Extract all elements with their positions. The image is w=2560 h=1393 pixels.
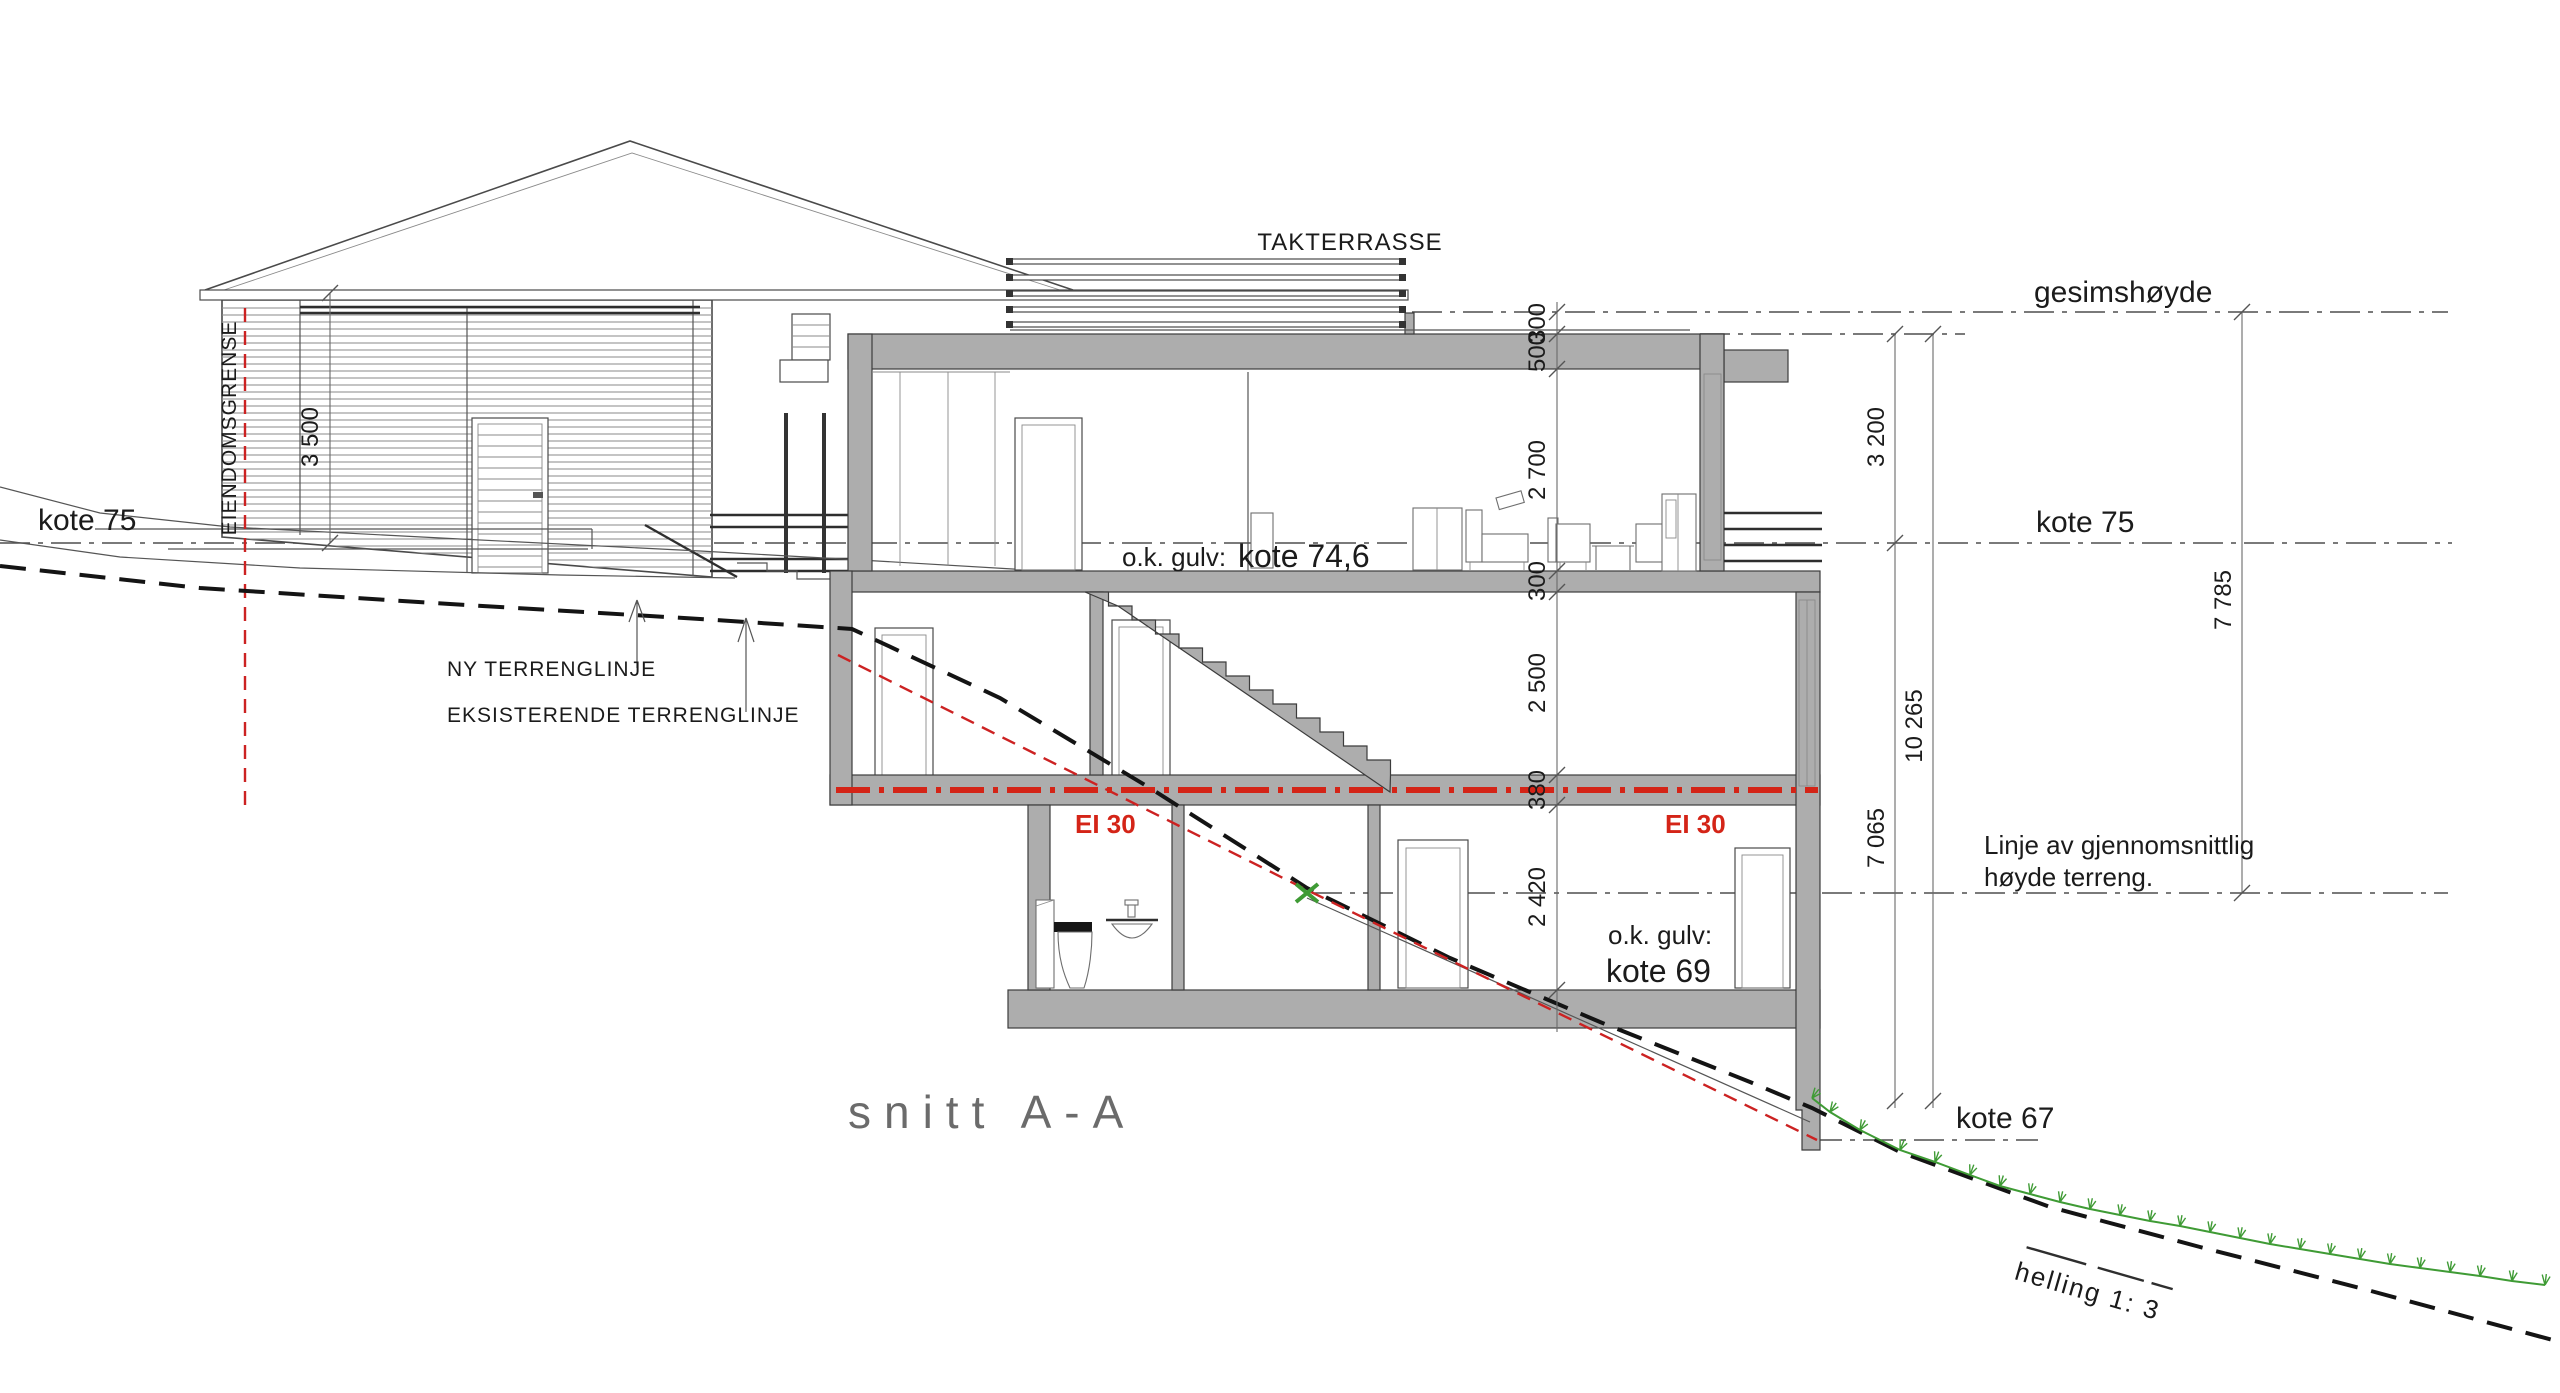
ei30-label-right: EI 30 bbox=[1665, 809, 1726, 839]
right-dim-ticks bbox=[1887, 304, 2250, 1109]
basement-floor-slab bbox=[1008, 990, 1820, 1028]
left-wall-middle bbox=[830, 571, 852, 805]
dim-7065: 7 065 bbox=[1863, 808, 1890, 868]
kote67-label: kote 67 bbox=[1956, 1102, 2054, 1135]
dim-300-mid: 300 bbox=[1524, 561, 1551, 601]
basement-partition-1 bbox=[1172, 805, 1184, 990]
wardrobe bbox=[872, 372, 1010, 566]
dim-2700: 2 700 bbox=[1524, 440, 1551, 500]
hipped-roof bbox=[205, 141, 1073, 290]
roof-slab bbox=[848, 334, 1724, 369]
roof-parapet-ledge bbox=[1724, 350, 1788, 382]
ok-gulv-basement-prefix: o.k. gulv: bbox=[1608, 920, 1712, 950]
building-section bbox=[780, 313, 1820, 1150]
dim-3500: 3 500 bbox=[297, 407, 324, 467]
eksisterende-terrenglinje-label: EKSISTERENDE TERRENGLINJE bbox=[447, 704, 800, 727]
avg-terrain-label-1: Linje av gjennomsnittlig bbox=[1984, 830, 2254, 860]
right-wall-lower bbox=[1796, 592, 1820, 1150]
sink bbox=[1106, 900, 1158, 938]
terrain bbox=[0, 566, 2560, 1342]
main-floor-door bbox=[1015, 418, 1082, 570]
dim-3200: 3 200 bbox=[1863, 407, 1890, 467]
terrain-callouts: NY TERRENGLINJE EKSISTERENDE TERRENGLINJ… bbox=[447, 600, 800, 727]
main-floor-slab bbox=[848, 571, 1820, 592]
dimension-chain: 300 500 2 700 300 2 500 380 2 420 bbox=[1524, 302, 1565, 1032]
kote75-right-label: kote 75 bbox=[2036, 506, 2134, 539]
balcony-railing bbox=[1724, 513, 1822, 561]
dim-10265: 10 265 bbox=[1901, 689, 1928, 762]
new-terrain-green bbox=[1812, 1098, 2545, 1285]
pergola-rails bbox=[1006, 258, 1406, 328]
ok-gulv-main-prefix: o.k. gulv: bbox=[1122, 542, 1226, 572]
dim-7785: 7 785 bbox=[2210, 570, 2237, 630]
dim-2500: 2 500 bbox=[1524, 653, 1551, 713]
helling-label: helling 1: 3 bbox=[2012, 1256, 2164, 1326]
dim-2420: 2 420 bbox=[1524, 867, 1551, 927]
basement-partition-2 bbox=[1368, 805, 1380, 990]
middle-partition bbox=[1090, 592, 1103, 775]
door-handle bbox=[533, 492, 543, 498]
dimension-right: 3 200 7 065 10 265 7 785 bbox=[1863, 304, 2250, 1109]
roof-beam-block bbox=[792, 314, 830, 360]
kote75-left-label: kote 75 bbox=[38, 504, 136, 537]
pergola-post bbox=[1405, 313, 1414, 334]
middle-floor-doors bbox=[875, 620, 1170, 782]
avg-terrain-label-2: høyde terreng. bbox=[1984, 862, 2153, 892]
ok-gulv-main-value: kote 74,6 bbox=[1238, 538, 1370, 574]
toilet bbox=[1036, 900, 1092, 988]
left-wall-upper bbox=[848, 334, 872, 571]
helling-annotation: helling 1: 3 bbox=[2012, 1246, 2173, 1327]
drawing-title: snitt A-A bbox=[848, 1086, 1136, 1138]
entry-ledge bbox=[780, 360, 828, 382]
ei30-label-left: EI 30 bbox=[1075, 809, 1136, 839]
property-line: EIENDOMSGRENSE bbox=[218, 308, 245, 805]
entry-door bbox=[472, 418, 548, 573]
section-drawing-svg: EIENDOMSGRENSE bbox=[0, 0, 2560, 1393]
dim-380: 380 bbox=[1524, 770, 1551, 810]
gesimshoyde-label: gesimshøyde bbox=[2034, 276, 2212, 309]
drawing-canvas: EIENDOMSGRENSE bbox=[0, 0, 2560, 1393]
basement-right-door bbox=[1735, 848, 1790, 988]
eiendomsgrense-label: EIENDOMSGRENSE bbox=[218, 321, 241, 536]
furniture bbox=[1413, 491, 1696, 571]
dim-500: 500 bbox=[1524, 332, 1551, 372]
basement-door bbox=[1398, 840, 1468, 988]
ok-gulv-basement-value: kote 69 bbox=[1606, 953, 1711, 989]
ny-terrenglinje-label: NY TERRENGLINJE bbox=[447, 658, 656, 681]
takterrasse-label: TAKTERRASSE bbox=[1257, 229, 1442, 256]
